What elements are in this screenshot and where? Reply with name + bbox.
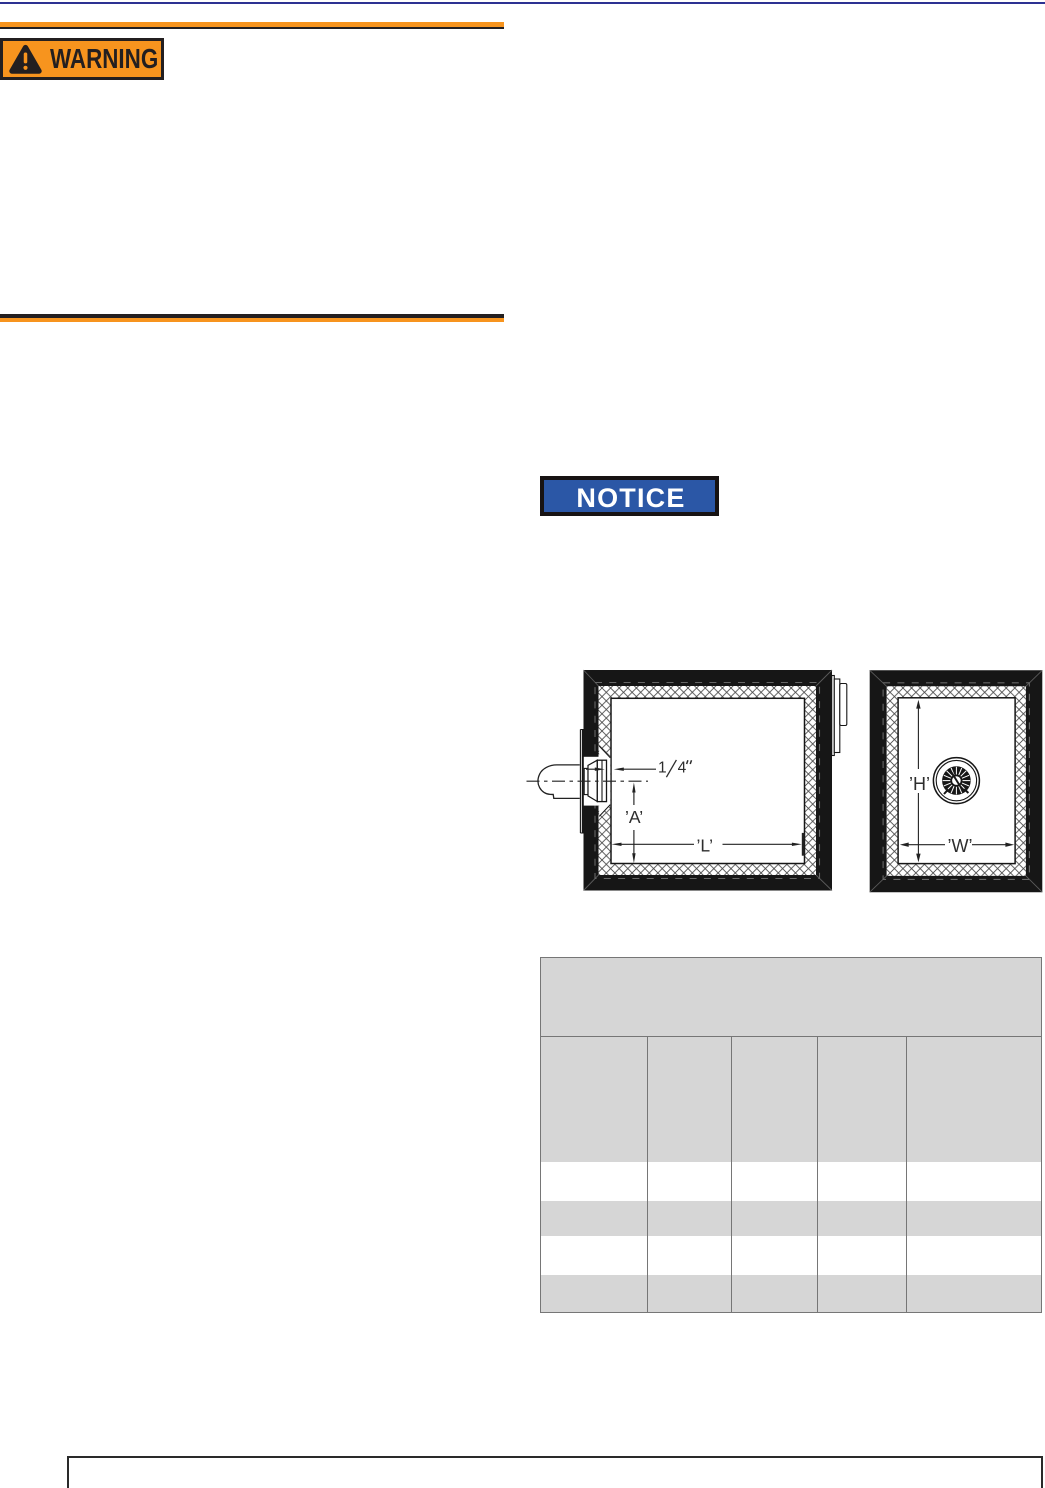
svg-text:’H’: ’H’ [909,774,930,794]
svg-text:4: 4 [678,759,687,776]
svg-text:1: 1 [658,759,667,776]
svg-text:’W’: ’W’ [948,836,973,856]
svg-text:’A’: ’A’ [625,807,643,827]
svg-text:’L’: ’L’ [697,836,714,856]
